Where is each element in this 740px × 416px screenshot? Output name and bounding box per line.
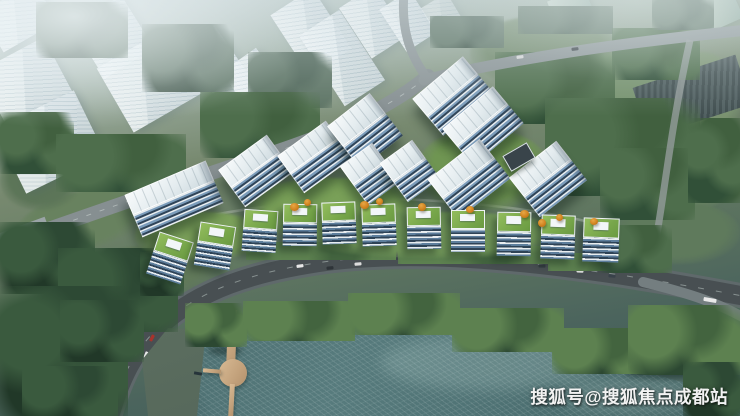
tree-cluster (452, 308, 564, 352)
lowrise-building (283, 204, 318, 247)
lowrise-building (194, 221, 236, 270)
green-roof (321, 201, 356, 221)
lowrise-building (321, 201, 356, 244)
tree-cluster (243, 301, 355, 341)
autumn-tree (360, 201, 369, 209)
lowrise-building (242, 209, 279, 253)
car (608, 274, 615, 278)
autumn-tree (304, 199, 311, 206)
lowrise-facade (582, 238, 619, 263)
lowrise-facade (242, 228, 277, 253)
autumn-tree (520, 210, 529, 218)
tree-cluster (60, 300, 144, 362)
car (538, 264, 545, 267)
lowrise-facade (407, 226, 441, 249)
lowrise-facade (497, 232, 531, 256)
tree-cluster (22, 366, 118, 416)
tree-cluster (185, 303, 247, 347)
lowrise-facade (540, 235, 575, 260)
green-roof (583, 217, 620, 238)
lowrise-building (361, 203, 396, 246)
autumn-tree (290, 203, 299, 211)
lowrise-facade (362, 223, 397, 247)
autumn-tree (418, 203, 426, 211)
autumn-tree (538, 219, 546, 227)
green-roof (451, 210, 485, 229)
lowrise-building (582, 217, 620, 262)
car (354, 262, 361, 266)
lowrise-facade (451, 229, 485, 252)
road-top-branch (403, 0, 427, 78)
lowrise-facade (322, 221, 357, 245)
autumn-tree (590, 218, 598, 225)
lowrise-facade (283, 223, 317, 246)
autumn-tree (556, 214, 563, 221)
green-roof (243, 209, 278, 231)
lowrise-building (451, 210, 485, 252)
lowrise-building (497, 212, 532, 257)
aerial-render-scene: 搜狐号@搜狐焦点成都站 (0, 0, 740, 416)
tree-reflection (208, 346, 242, 355)
lowrise-building (407, 207, 442, 250)
autumn-tree (466, 206, 474, 213)
pier-platform (219, 359, 247, 387)
green-roof (283, 204, 317, 224)
watermark-text: 搜狐号@搜狐焦点成都站 (530, 384, 728, 409)
tree-cluster (348, 293, 460, 335)
autumn-tree (376, 198, 383, 205)
